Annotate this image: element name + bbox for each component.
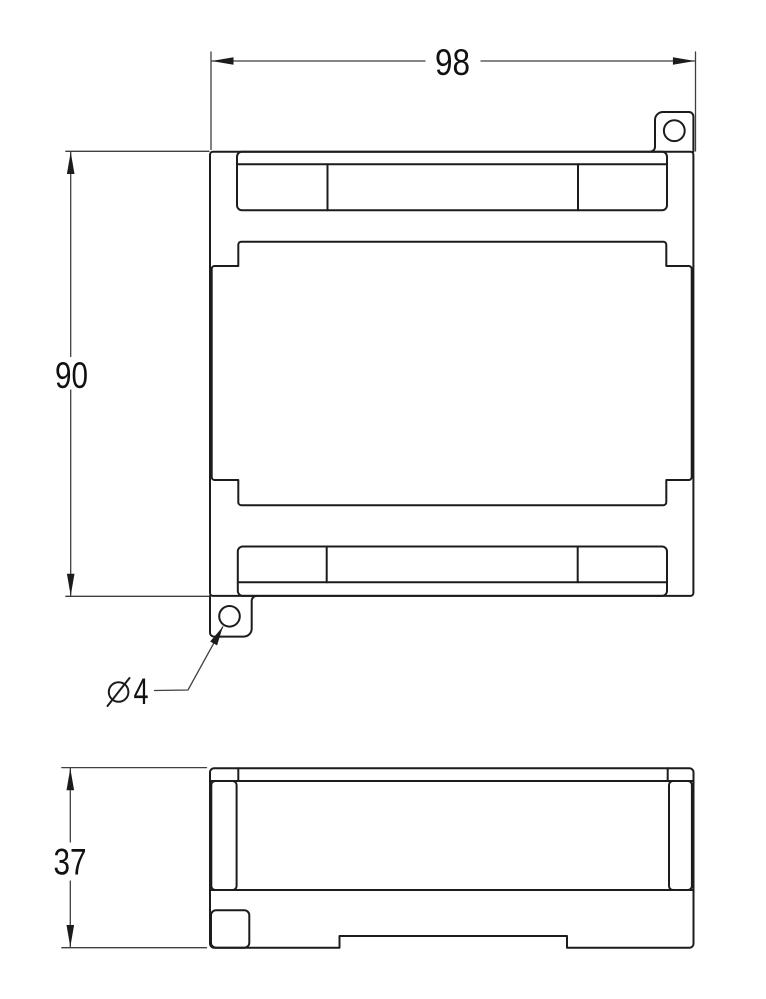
dimension-arrowhead-depth-bottom xyxy=(67,925,75,947)
dimension-arrowhead-depth-top xyxy=(67,768,75,790)
front-top-terminal-strip xyxy=(237,152,667,211)
side-view xyxy=(210,768,694,947)
hole-diameter-value: 4 xyxy=(134,671,149,712)
side-mounting-tab xyxy=(211,910,249,947)
dimension-arrowhead-width-left xyxy=(212,57,234,65)
drawing-canvas: 98 90 37 4 xyxy=(0,0,766,999)
side-right-terminal-column xyxy=(669,781,692,890)
engineering-drawing-svg: 98 90 37 4 xyxy=(0,0,766,999)
front-bottom-terminal-strip xyxy=(238,547,667,596)
dimension-arrowhead-height-top xyxy=(67,152,75,174)
dimension-height-label: 90 xyxy=(55,355,88,396)
dimension-depth-label: 37 xyxy=(54,842,87,883)
dimension-depth: 37 xyxy=(54,768,207,948)
hole-diameter-callout: 4 xyxy=(108,627,223,712)
dimension-width-label: 98 xyxy=(435,42,470,83)
dimension-overall-height: 90 xyxy=(55,151,209,596)
front-face-panel xyxy=(212,242,692,506)
dimension-overall-width: 98 xyxy=(211,42,696,151)
dimension-arrowhead-width-right xyxy=(673,57,695,65)
front-mounting-hole-top-right xyxy=(664,120,685,141)
side-body-outline xyxy=(210,768,694,947)
front-view xyxy=(210,112,693,637)
front-mounting-tab-bottom-left xyxy=(210,596,257,637)
front-body-outline xyxy=(210,152,693,596)
dimension-arrowhead-height-bottom xyxy=(67,574,75,596)
front-mounting-tab-top-right xyxy=(650,112,693,152)
front-mounting-hole-bottom-left xyxy=(219,606,240,627)
diameter-symbol-icon xyxy=(108,678,130,706)
side-left-terminal-column xyxy=(211,781,236,890)
